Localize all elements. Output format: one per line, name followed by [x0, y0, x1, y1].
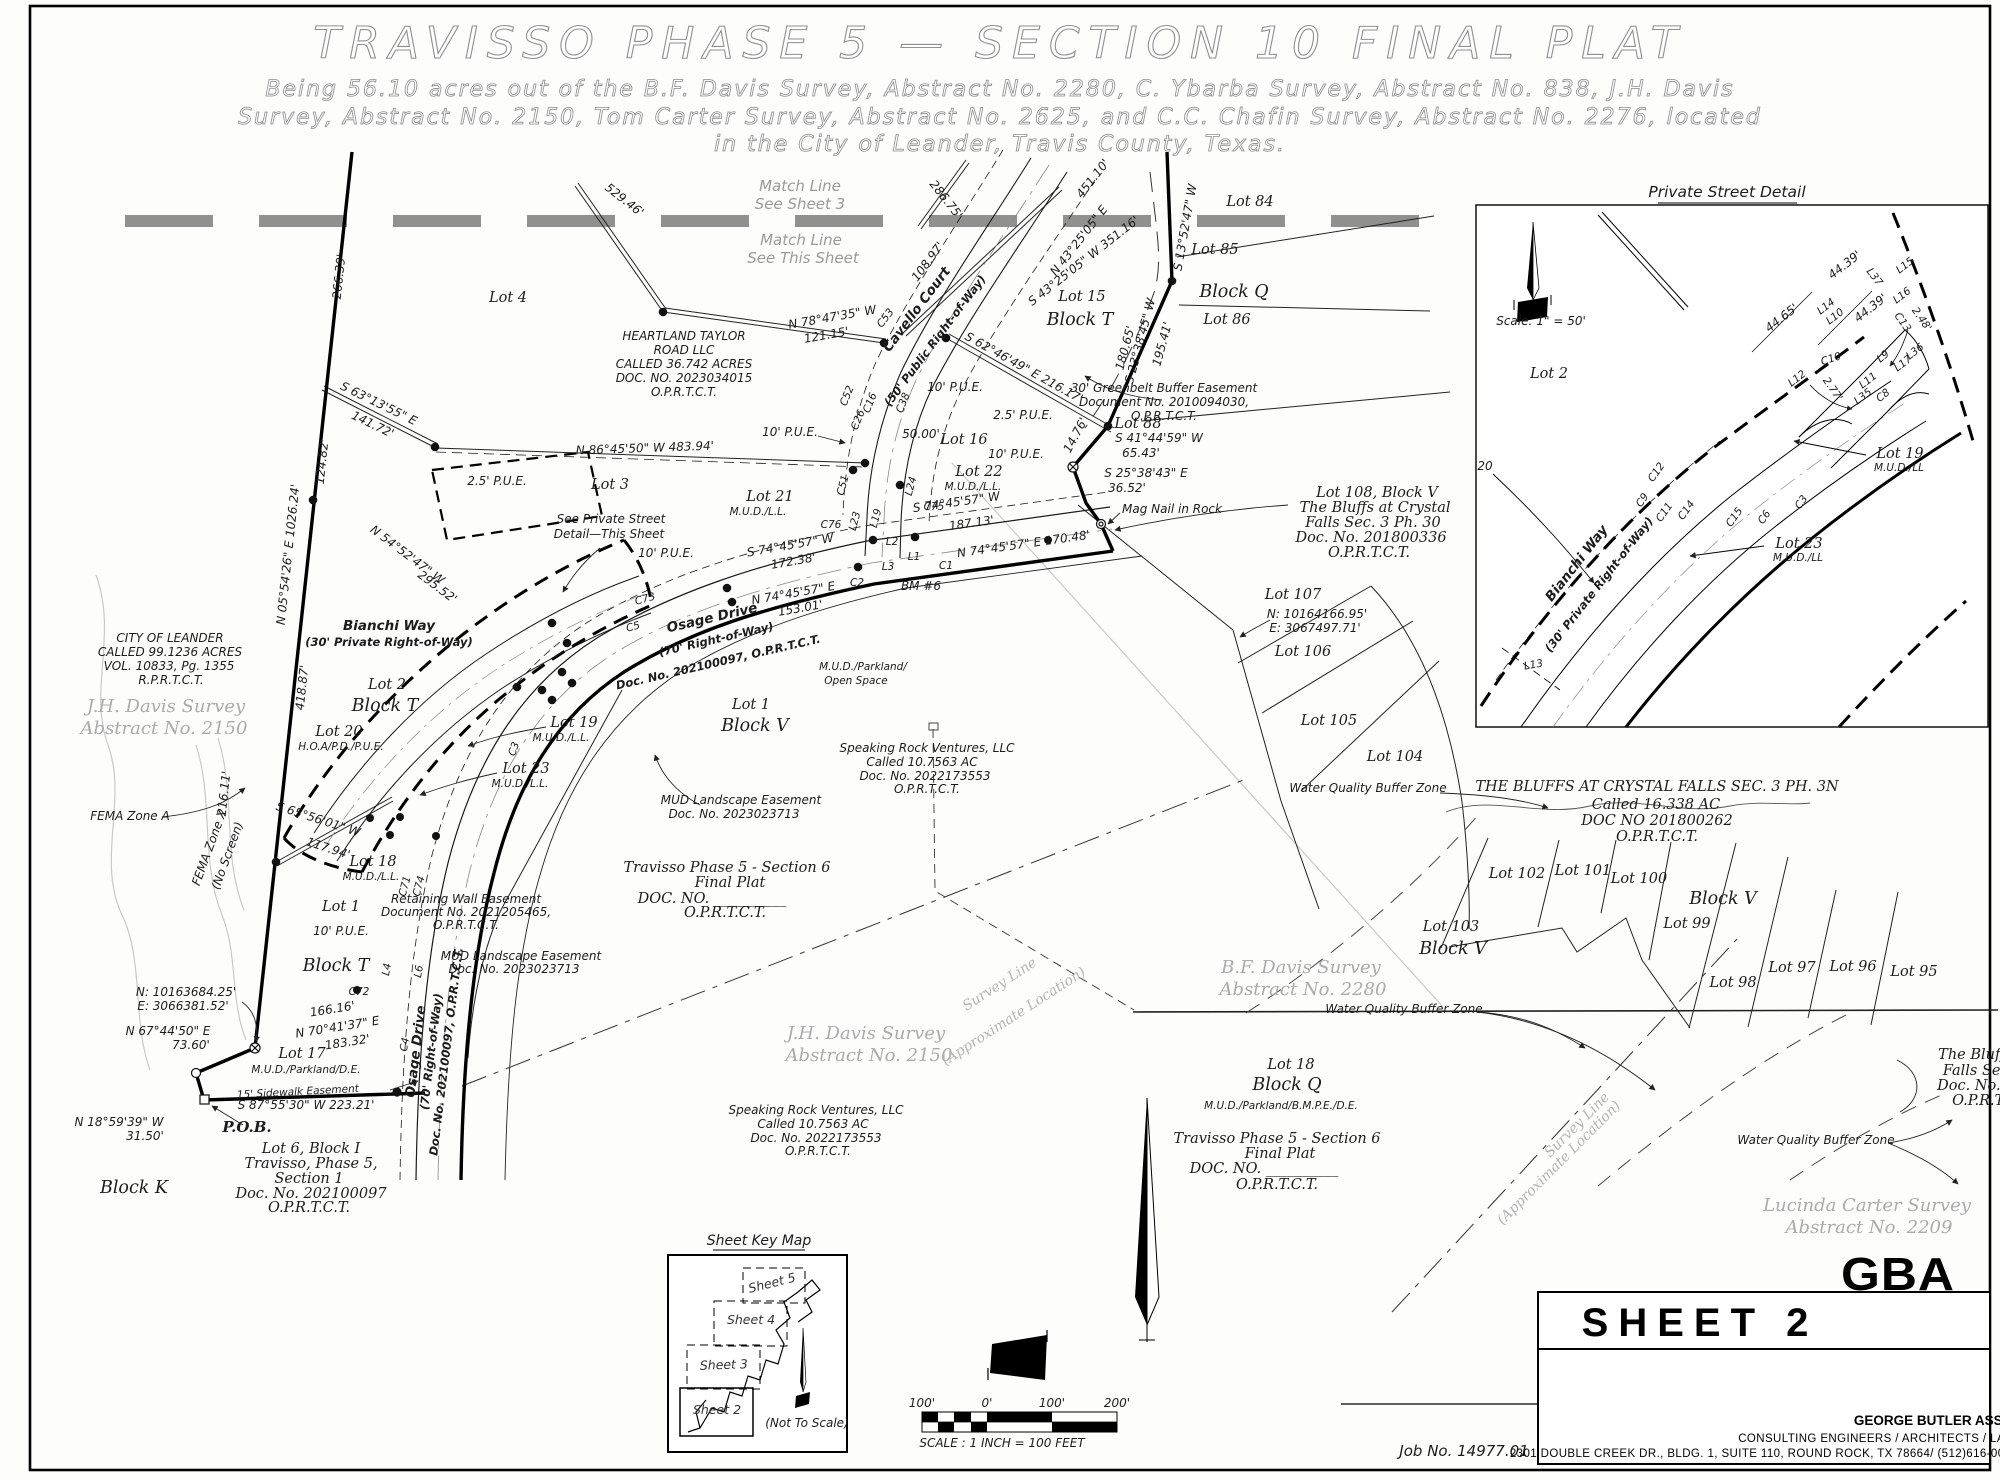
map-label: M.U.D./L.L.: [343, 871, 400, 883]
map-label: 100': [1039, 1396, 1065, 1410]
map-label: Retaining Wall Easement: [391, 892, 542, 906]
north-arrow: [988, 1098, 1159, 1380]
map-label: Sheet Key Map: [707, 1233, 812, 1249]
map-label: ROAD LLC: [654, 343, 715, 357]
map-label: Sheet 4: [727, 1312, 775, 1327]
map-label: 10' P.U.E.: [988, 447, 1044, 461]
map-label: H.O.A/P.D./P.U.E.: [298, 741, 384, 753]
map-label: Open Space: [824, 675, 887, 687]
map-label: Abstract No. 2150: [79, 718, 248, 739]
map-label: Bianchi Way: [343, 618, 436, 634]
map-label: S 25°38'43" E: [1104, 466, 1188, 480]
page-subtitle-1: Being 56.10 acres out of the B.F. Davis …: [265, 77, 1734, 102]
map-label: O.P.R.T.C.T.: [651, 385, 717, 399]
map-label: Lot 106: [1274, 644, 1331, 660]
map-label: 30' Greenbelt Buffer Easement: [1071, 381, 1259, 395]
map-label: M.U.D./L.L.: [492, 778, 549, 790]
map-label: Lot 88: [1113, 416, 1161, 432]
map-label: Lot 19: [1875, 446, 1923, 462]
map-label: Travisso Phase 5 - Section 6: [1173, 1131, 1380, 1147]
map-label: R.P.R.T.C.T.: [138, 673, 203, 687]
map-label: 100': [909, 1396, 935, 1410]
map-label: C52: [838, 384, 857, 408]
map-label: Lot 3: [590, 477, 629, 493]
map-label: P.O.B.: [221, 1118, 271, 1136]
map-label: 200': [1104, 1396, 1130, 1410]
map-label: Doc. No. 2022173553: [859, 769, 990, 783]
map-label: O.P.R.T.C: [1952, 1093, 2000, 1109]
map-label: C76: [821, 519, 842, 531]
map-label: 20: [1477, 459, 1493, 473]
map-label: Lot 97: [1767, 960, 1816, 976]
map-label: S 41°44'59" W: [1115, 431, 1204, 445]
map-label: Lot 84: [1225, 194, 1273, 210]
map-label: M.U.D./Parkland/B.M.P.E./D.E.: [1204, 1100, 1358, 1112]
map-label: Lot 18: [348, 854, 396, 870]
map-label: L19: [868, 507, 885, 529]
map-label: Speaking Rock Ventures, LLC: [839, 741, 1015, 755]
map-label: J.H. Davis Survey: [83, 696, 246, 717]
map-label: 10' P.U.E.: [762, 425, 818, 439]
page-title: TRAVISSO PHASE 5 — SECTION 10 FINAL PLAT: [313, 18, 1686, 69]
map-label: E: 3067497.71': [1269, 621, 1360, 635]
map-label: Lot 105: [1300, 713, 1357, 729]
map-label: Doc. No. 2023023713: [448, 962, 579, 976]
map-label: O.P.R.T.C.T.: [785, 1144, 851, 1158]
map-label: Lot 96: [1828, 959, 1876, 975]
header: TRAVISSO PHASE 5 — SECTION 10 FINAL PLAT…: [238, 18, 1762, 157]
map-label: Final Plat: [1244, 1146, 1316, 1162]
map-label: Lot 19: [549, 715, 597, 731]
map-label: Lot 23: [501, 761, 549, 777]
map-label: HEARTLAND TAYLOR: [622, 329, 745, 343]
map-label: Lot 95: [1889, 964, 1937, 980]
map-label: N: 10164166.95': [1267, 607, 1367, 621]
map-label: Block T: [1046, 310, 1115, 330]
map-label: Mag Nail in Rock: [1122, 502, 1223, 516]
map-label: Section 1: [274, 1171, 343, 1187]
map-label: M.U.D./L.L.: [533, 732, 590, 744]
map-label: M.U.D./LL: [1773, 552, 1823, 564]
map-label: Falls Sec. 3 Ph. 30: [1304, 515, 1441, 531]
sheet-number: SHEET 2: [1582, 1301, 1819, 1345]
map-label: C16: [861, 391, 880, 415]
map-label: Lot 16: [939, 432, 987, 448]
map-label: 10' P.U.E.: [638, 546, 694, 560]
map-label: S 13°52'47" W: [1171, 182, 1200, 272]
map-label: L4: [380, 962, 394, 976]
map-label: 65.43': [1122, 446, 1160, 460]
map-label: Match Line: [759, 177, 841, 195]
map-label: Water Quality Buffer Zone: [1737, 1133, 1894, 1147]
map-label: Water Quality Buffer Zone: [1325, 1002, 1482, 1016]
map-label: L6: [412, 964, 426, 979]
map-label: Lot 21: [745, 489, 793, 505]
map-label: M.U.D./L.L.: [730, 506, 787, 518]
map-label: 10' P.U.E.: [313, 924, 369, 938]
map-label: L2: [886, 536, 899, 548]
map-label: Lot 20: [314, 724, 362, 740]
map-label: Speaking Rock Ventures, LLC: [728, 1103, 904, 1117]
map-label: Abstract No. 2209: [1784, 1217, 1953, 1238]
map-label: DOC. NO. 2023034015: [616, 371, 753, 385]
map-label: Final Plat: [694, 875, 766, 891]
map-label: Doc. No. 201: [1936, 1078, 2000, 1094]
map-label: Lucinda Carter Survey: [1762, 1195, 1972, 1216]
map-label: O.P.R.T.C.T.: [894, 782, 960, 796]
map-label: The Bluffs at Crystal: [1299, 500, 1450, 516]
map-label: C72: [349, 986, 370, 998]
map-label: M.U.D./LL: [1874, 462, 1924, 474]
map-label: Sheet 2: [693, 1402, 741, 1417]
map-label: Document No. 2021205465,: [381, 905, 551, 919]
map-label: Lot 1: [731, 697, 770, 713]
map-label: Block T: [302, 956, 371, 976]
map-label: 2.5' P.U.E.: [467, 474, 527, 488]
map-label: DOC NO 201800262: [1580, 813, 1732, 829]
map-label: Lot 18: [1266, 1057, 1314, 1073]
map-label: L23: [847, 510, 864, 532]
map-label: 10' P.U.E.: [927, 380, 983, 394]
map-label: Detail—This Sheet: [554, 527, 666, 541]
scale-bar: [922, 1412, 1117, 1432]
map-label: Lot 85: [1190, 242, 1238, 258]
map-label: Document No. 2010094030,: [1079, 395, 1249, 409]
map-label: Sheet 3: [700, 1356, 749, 1373]
map-label: N 05°54'26" E 1026.24': [274, 483, 303, 625]
map-label: 216.11': [215, 770, 234, 817]
map-label: The Bluffs at: [1938, 1047, 2000, 1063]
map-label: Lot 17: [277, 1046, 326, 1062]
company-services: CONSULTING ENGINEERS / ARCHITECTS / LAND…: [1738, 1433, 2000, 1445]
map-label: Called 10.7563 AC: [866, 755, 978, 769]
map-label: See Private Street: [557, 512, 667, 526]
map-label: Lot 99: [1662, 916, 1710, 932]
map-label: Lot 101: [1554, 863, 1611, 879]
gba-logo: GBA: [1841, 1250, 1955, 1301]
map-label: O.P.R.T.C.T.: [1616, 829, 1698, 845]
map-label: Called 16.338 AC: [1592, 797, 1720, 813]
map-label: Lot 4: [488, 290, 527, 306]
map-label: (Not To Scale): [765, 1416, 849, 1430]
map-label: O.P.R.T.C.T.: [684, 905, 766, 921]
map-label: Block Q: [1251, 1075, 1321, 1095]
map-label: C3: [506, 740, 522, 757]
map-label: 14.76': [1060, 415, 1090, 455]
map-label: Job No. 14977.01: [1396, 1442, 1528, 1460]
map-label: 50.00': [902, 427, 940, 441]
map-label: Abstract No. 2280: [1218, 979, 1387, 1000]
map-label: SCALE : 1 INCH = 100 FEET: [919, 1436, 1086, 1450]
map-label: Block K: [99, 1178, 169, 1198]
map-label: 266.39': [330, 253, 349, 300]
map-label: M.U.D./Parkland/: [819, 661, 908, 673]
map-label: Lot 2: [367, 677, 406, 693]
map-label: CALLED 36.742 ACRES: [616, 357, 753, 371]
map-label: Block V: [1688, 889, 1759, 909]
map-label: 529.46': [602, 180, 646, 219]
map-label: C73: [634, 590, 657, 607]
map-label: Lot 100: [1610, 871, 1667, 887]
map-label: 36.52': [1108, 481, 1146, 495]
map-label: E: 3066381.52': [137, 999, 228, 1013]
map-label: Doc. No. 2022173553: [750, 1131, 881, 1145]
map-label: 73.60': [172, 1038, 210, 1052]
plat-sheet: SHEET 2 GBA GEORGE BUTLER ASSOCIATES, IN…: [0, 0, 2000, 1479]
page-subtitle-3: in the City of Leander, Travis County, T…: [714, 132, 1286, 157]
title-block: SHEET 2 GBA GEORGE BUTLER ASSOCIATES, IN…: [1341, 1250, 2000, 1464]
map-label: 166.16': [309, 999, 356, 1020]
map-label: Block V: [720, 716, 791, 736]
map-label: J.H. Davis Survey: [783, 1023, 946, 1044]
map-label: Lot 22: [954, 464, 1002, 480]
map-label: Water Quality Buffer Zone: [1289, 781, 1446, 795]
map-label: Block T: [351, 696, 420, 716]
map-label: Lot 6, Block I: [261, 1141, 361, 1157]
map-label: Lot 1: [321, 899, 360, 915]
map-label: N 18°59'39" W: [74, 1115, 164, 1129]
map-label: C5: [625, 619, 642, 634]
map-label: Lot 108, Block V: [1315, 485, 1439, 501]
map-label: Lot 2: [1529, 366, 1568, 382]
map-label: Match Line: [760, 231, 842, 249]
map-label: Private Street Detail: [1648, 183, 1806, 201]
map-label: BM #6: [901, 579, 941, 593]
map-label: DOC. NO. __________: [1189, 1161, 1340, 1177]
map-label: Lot 104: [1366, 749, 1423, 765]
map-label: B.F. Davis Survey: [1220, 957, 1381, 978]
map-label: Block Q: [1198, 282, 1268, 302]
map-label: O.P.R.T.C.T.: [1236, 1177, 1318, 1193]
map-label: 2.5' P.U.E.: [993, 408, 1053, 422]
map-label: N 67°44'50" E: [126, 1024, 211, 1038]
map-label: S 87°55'30" W 223.21': [238, 1098, 375, 1112]
map-label: MUD Landscape Easement: [661, 793, 823, 807]
map-label: Travisso Phase 5 - Section 6: [623, 860, 830, 876]
map-label: Falls Sec. 3: [1942, 1063, 2000, 1079]
map-label: Called 10.7563 AC: [757, 1117, 869, 1131]
map-label: Lot 15: [1057, 289, 1105, 305]
map-label: Block V: [1418, 939, 1489, 959]
plat-drawing: SHEET 2 GBA GEORGE BUTLER ASSOCIATES, IN…: [0, 0, 2000, 1479]
map-label: Doc. No. 2023023713: [668, 807, 799, 821]
map-label: 187.13': [948, 513, 995, 533]
map-label: S 62°46'49" E 216.17': [963, 329, 1086, 406]
map-label: See This Sheet: [747, 249, 860, 267]
map-label: 124.82': [313, 438, 332, 485]
map-label: Lot 86: [1202, 312, 1250, 328]
map-label: CALLED 99.1236 ACRES: [98, 645, 243, 659]
map-label: N: 10163684.25': [136, 985, 236, 999]
map-label: THE BLUFFS AT CRYSTAL FALLS SEC. 3 PH. 3…: [1475, 779, 1840, 795]
map-label: 0': [982, 1396, 993, 1410]
map-label: Lot 98: [1708, 975, 1756, 991]
map-label: N 86°45'50" W 483.94': [576, 439, 715, 458]
map-label: CITY OF LEANDER: [116, 631, 223, 645]
map-label: (Approximate Location): [1494, 1098, 1624, 1228]
map-label: O.P.R.T.C.T.: [1328, 545, 1410, 561]
company-address: 2301 DOUBLE CREEK DR., BLDG. 1, SUITE 11…: [1510, 1448, 2000, 1460]
map-label: O.P.R.T.C.T.: [268, 1200, 350, 1216]
map-label: L3: [882, 561, 895, 573]
map-label: C2: [850, 577, 864, 589]
map-label: 31.50': [126, 1129, 164, 1143]
map-label: Doc. No. 201800336: [1294, 530, 1446, 546]
map-label: Lot 23: [1774, 536, 1822, 552]
map-label: Lot 103: [1422, 919, 1479, 935]
map-label: 451.10': [1073, 156, 1112, 200]
map-label: C1: [939, 560, 953, 572]
map-label: M.U.D./Parkland/D.E.: [251, 1064, 360, 1076]
map-label: FEMA Zone A: [90, 809, 169, 823]
page-subtitle-2: Survey, Abstract No. 2150, Tom Carter Su…: [238, 105, 1762, 130]
map-label: Lot 107: [1264, 587, 1322, 603]
map-label: C4: [398, 1037, 412, 1053]
map-label: L1: [908, 551, 921, 563]
map-label: O.P.R.T.C.T.: [433, 918, 499, 932]
company-name: GEORGE BUTLER ASSOCIATES, INC.: [1854, 1413, 2000, 1428]
map-label: Scale: 1" = 50': [1496, 314, 1586, 328]
map-label: VOL. 10833, Pg. 1355: [104, 659, 235, 673]
map-label: Abstract No. 2150: [784, 1045, 953, 1066]
map-label: Lot 102: [1488, 866, 1545, 882]
map-label: Travisso, Phase 5,: [244, 1156, 377, 1172]
map-label: C51: [835, 474, 852, 497]
map-label: See Sheet 3: [755, 195, 845, 213]
monument-markers: [272, 277, 1177, 1097]
map-label: (30' Private Right-of-Way): [305, 635, 473, 649]
